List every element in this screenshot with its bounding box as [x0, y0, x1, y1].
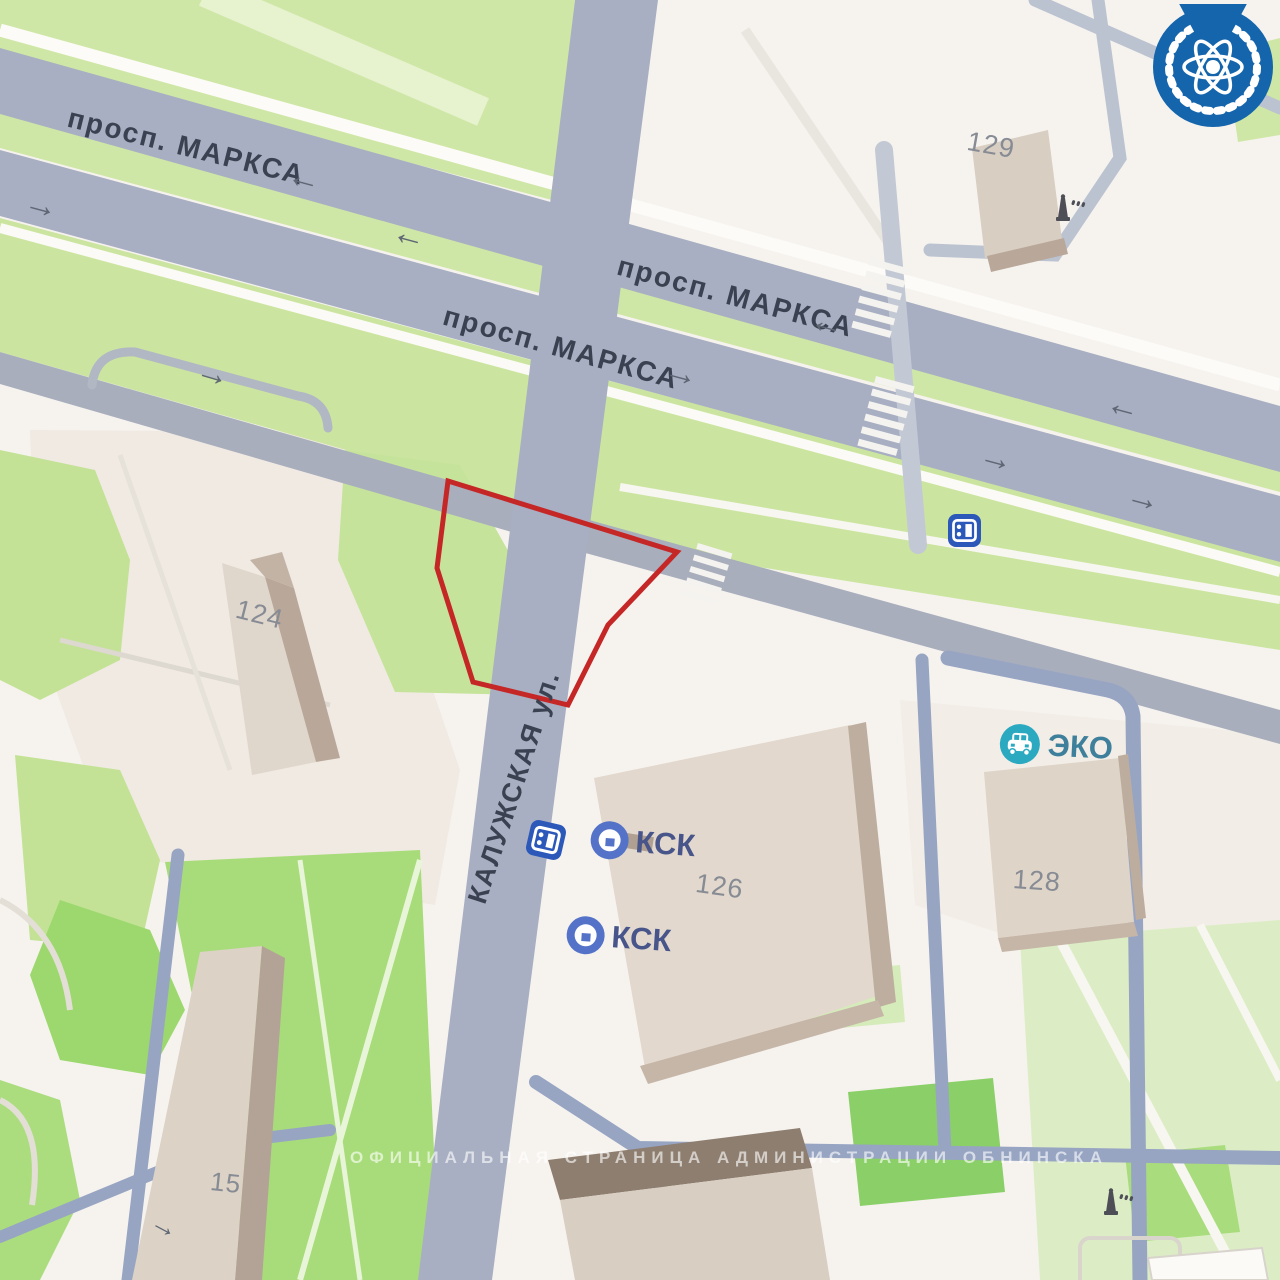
poi-label: КСК [634, 824, 696, 864]
poi-label: КСК [610, 919, 672, 959]
poi-kck-1: КСК [589, 820, 696, 865]
poi-eko: ЭКО [998, 722, 1114, 770]
kck-circle-icon [589, 820, 630, 861]
building-number: 126 [694, 868, 746, 905]
bus-stop-icon [948, 514, 981, 547]
building-number: 128 [1012, 864, 1062, 898]
kck-circle-icon [565, 915, 606, 956]
map-image: просп. МАРКСА просп. МАРКСА просп. МАРКС… [0, 0, 1280, 1280]
map-canvas [0, 0, 1280, 1280]
obninsk-administration-emblem [1150, 4, 1276, 135]
building-number: 15 [209, 1166, 243, 1200]
watermark-text: ОФИЦИАЛЬНАЯ СТРАНИЦА АДМИНИСТРАЦИИ ОБНИН… [350, 1148, 930, 1168]
poi-label: ЭКО [1047, 728, 1114, 767]
monument-icon [1100, 1186, 1134, 1223]
monument-icon [1052, 192, 1086, 229]
car-service-icon [998, 722, 1042, 766]
poi-kck-2: КСК [565, 915, 672, 960]
